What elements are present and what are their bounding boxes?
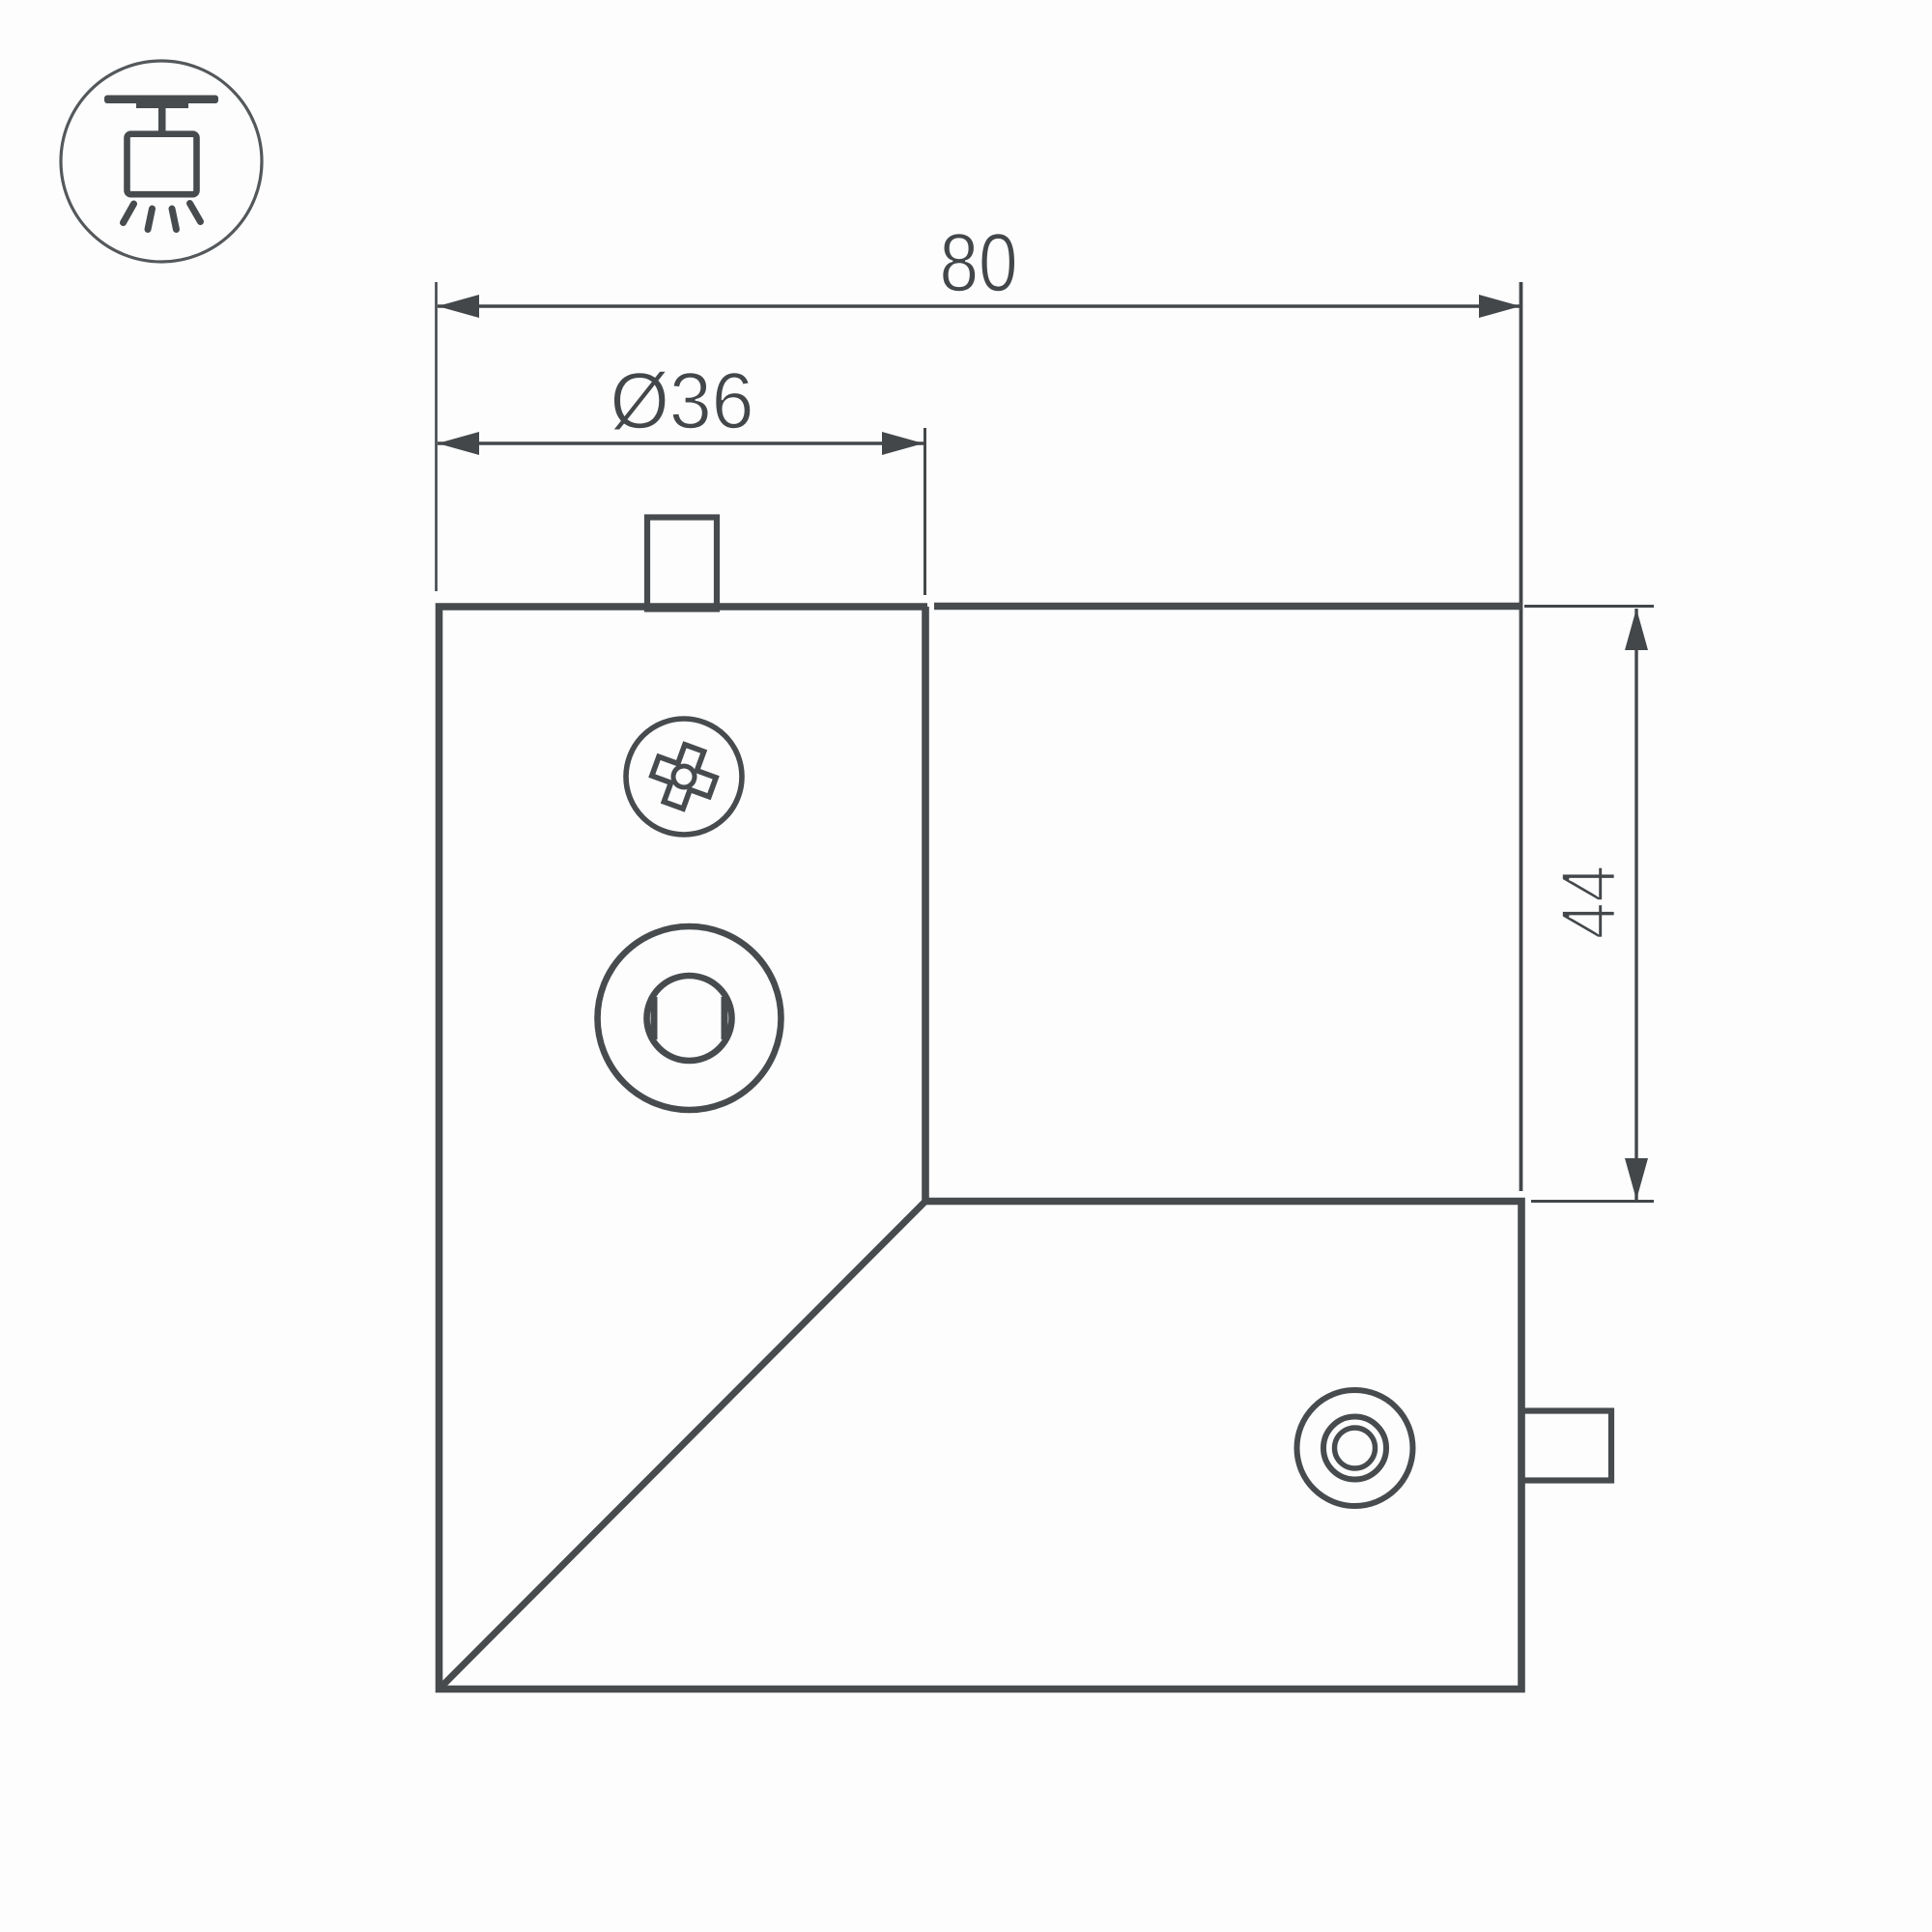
svg-text:Ø36: Ø36 [611, 355, 754, 445]
svg-text:44: 44 [1546, 866, 1633, 940]
svg-text:80: 80 [940, 217, 1018, 309]
